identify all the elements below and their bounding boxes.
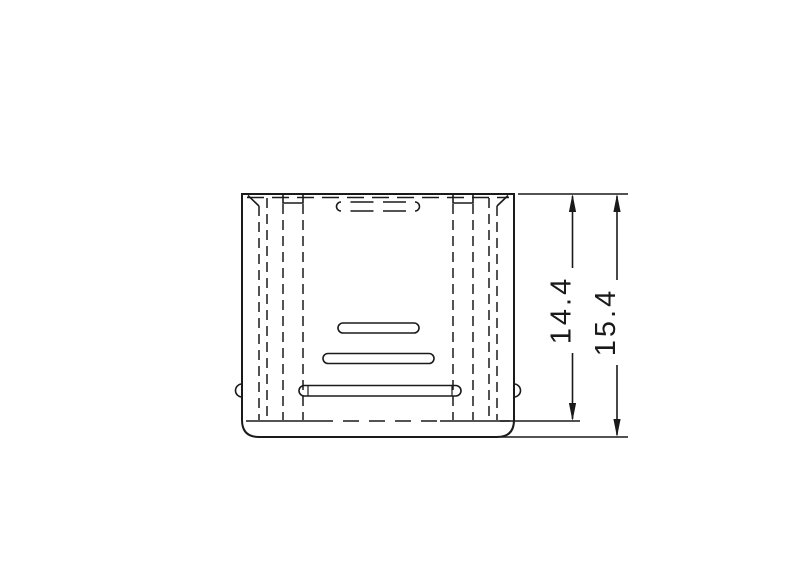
- drawing-canvas: 14.4 15.4: [0, 0, 800, 576]
- arrowhead-down: [569, 403, 576, 421]
- arrowhead-up: [613, 194, 620, 212]
- dimension-label-overall-height: 15.4: [590, 288, 622, 356]
- top-notch-right: [453, 195, 473, 203]
- technical-drawing: 14.4 15.4: [0, 0, 800, 576]
- hidden-slot-cap-left: [337, 202, 342, 211]
- slot-middle: [323, 354, 434, 364]
- dimension-overall-height: 15.4: [590, 194, 622, 437]
- dimension-annotations: 14.4 15.4: [500, 194, 628, 437]
- part-view: [236, 194, 521, 437]
- hidden-lines-vertical: [259, 198, 497, 420]
- dimension-label-inner-depth: 14.4: [546, 276, 578, 344]
- top-notch-left: [283, 195, 303, 203]
- slot-lower: [299, 386, 461, 397]
- slot-upper: [338, 323, 419, 333]
- arrowhead-down: [613, 419, 620, 437]
- arrowhead-up: [569, 194, 576, 212]
- dimension-inner-depth: 14.4: [546, 194, 578, 421]
- hidden-slot-cap-right: [415, 202, 420, 211]
- slot-lower-outline: [299, 386, 461, 397]
- hidden-slot-top: [337, 202, 420, 211]
